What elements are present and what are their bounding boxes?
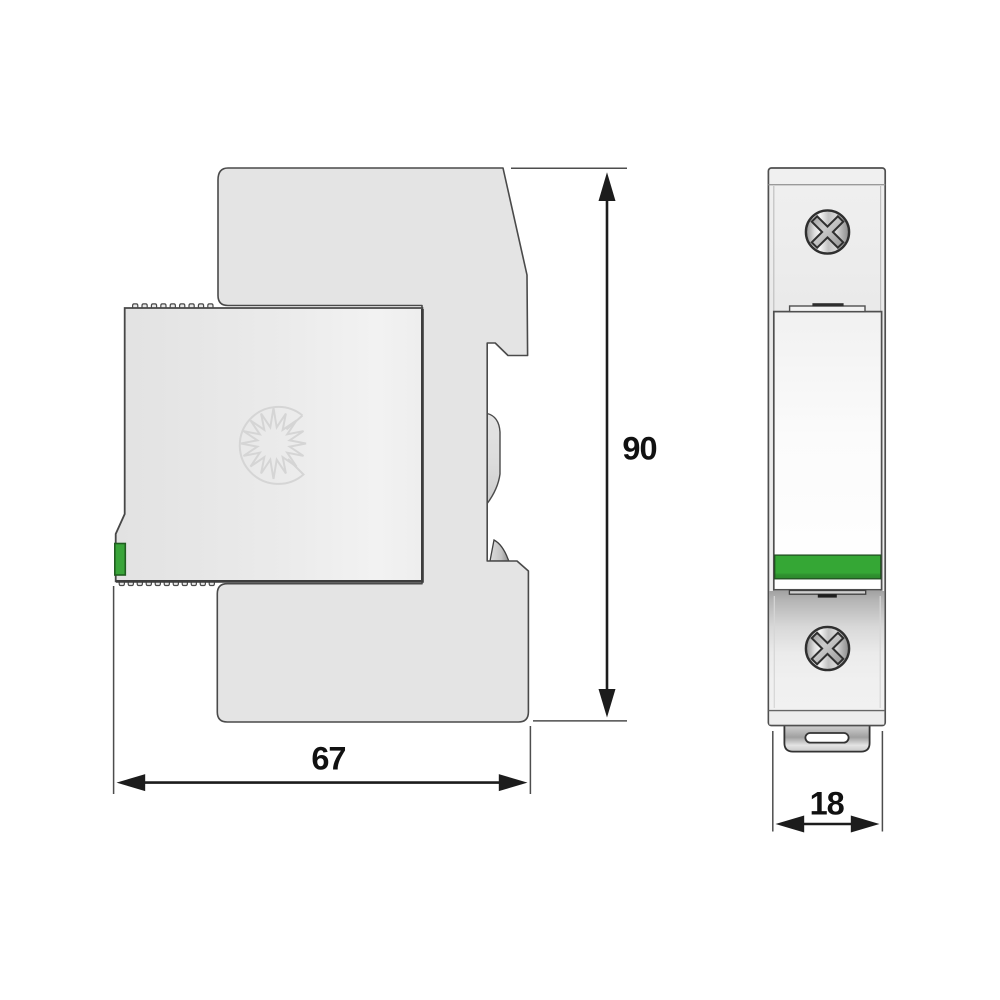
svg-text:90: 90 xyxy=(622,431,656,467)
svg-text:67: 67 xyxy=(311,741,345,777)
svg-text:18: 18 xyxy=(810,786,845,822)
